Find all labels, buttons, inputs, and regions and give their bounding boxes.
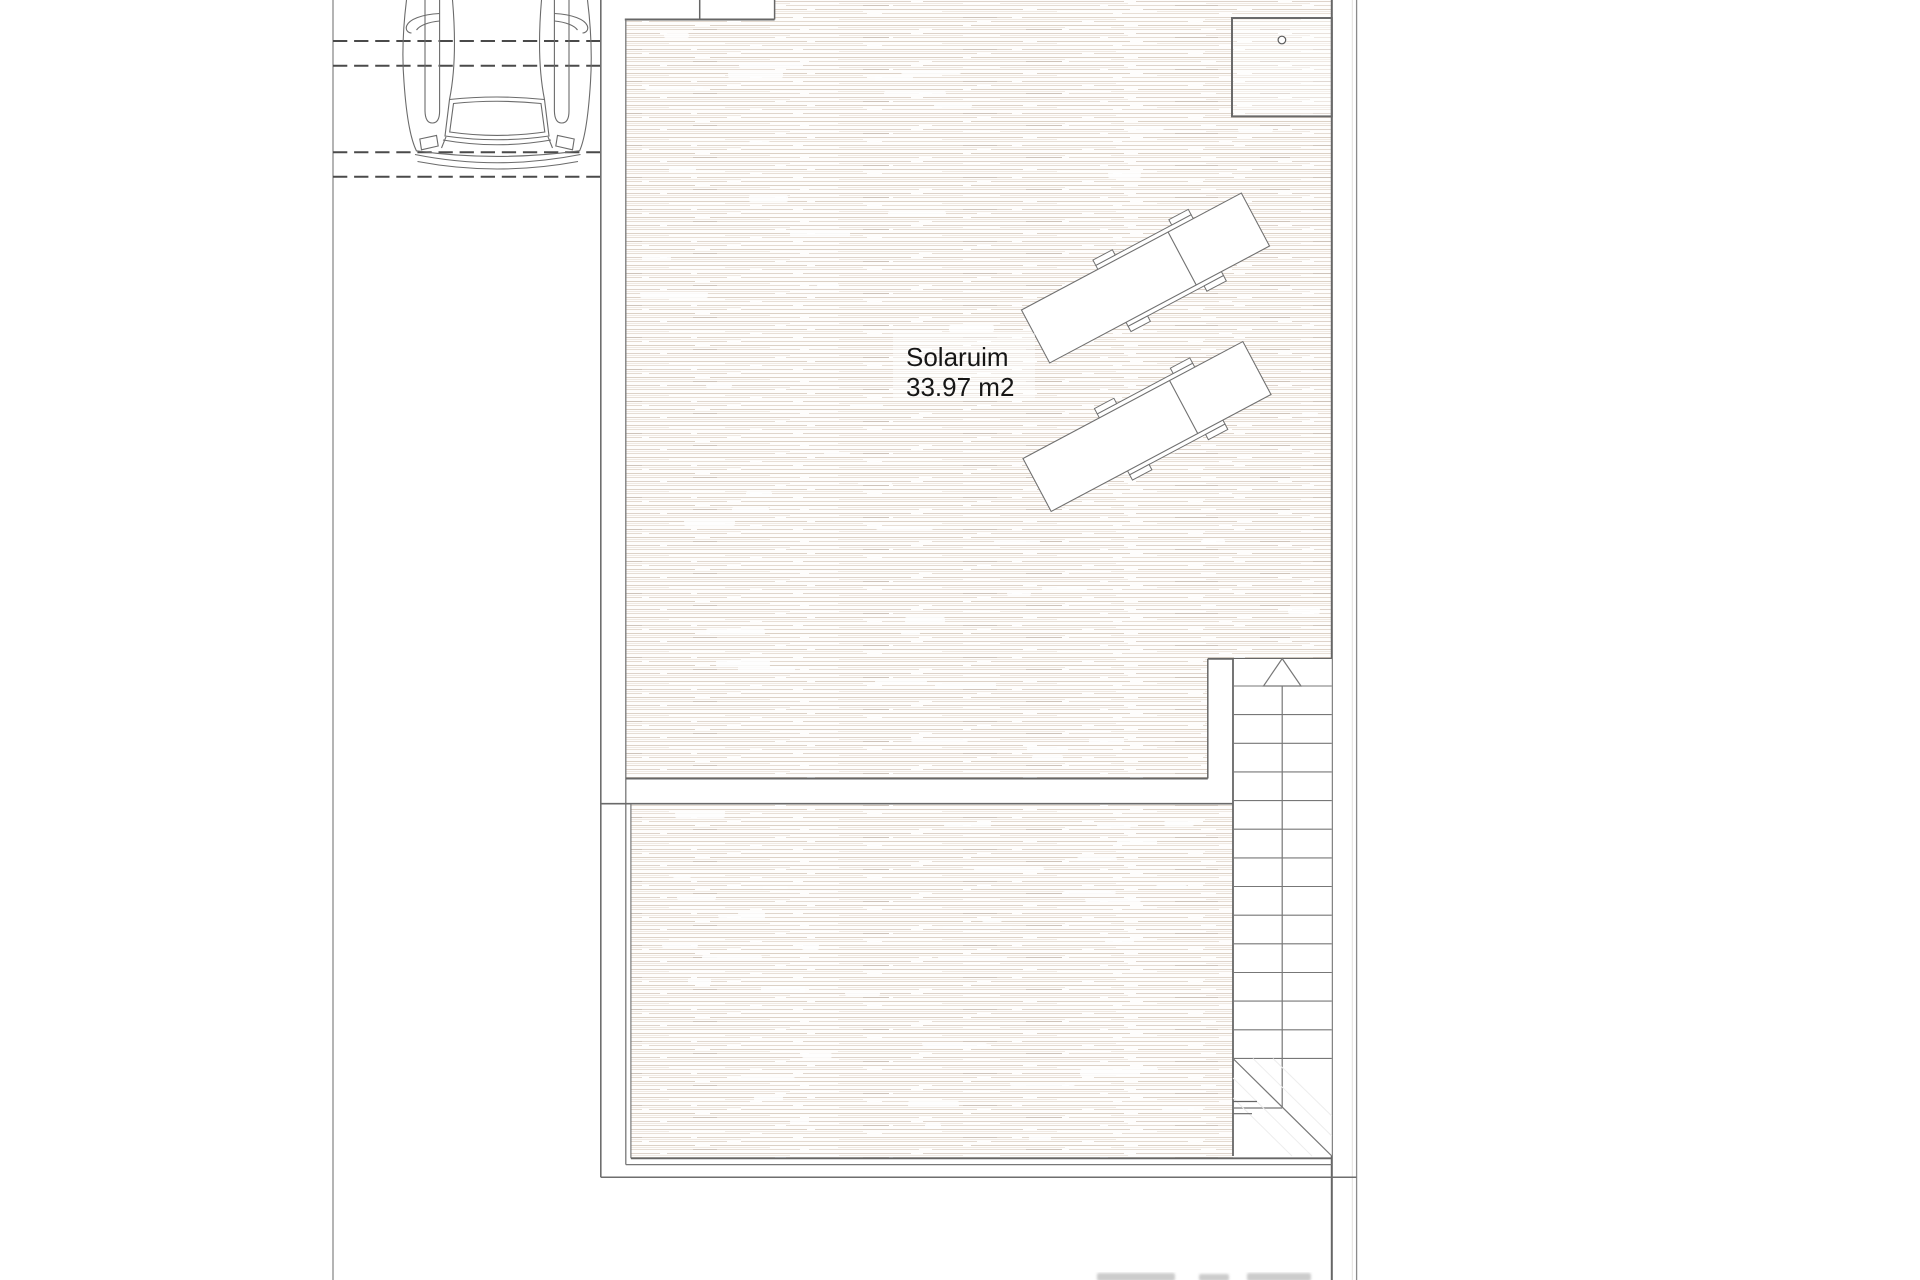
svg-text:Solaruim: Solaruim bbox=[906, 342, 1009, 372]
svg-text:33.97 m2: 33.97 m2 bbox=[906, 372, 1014, 402]
